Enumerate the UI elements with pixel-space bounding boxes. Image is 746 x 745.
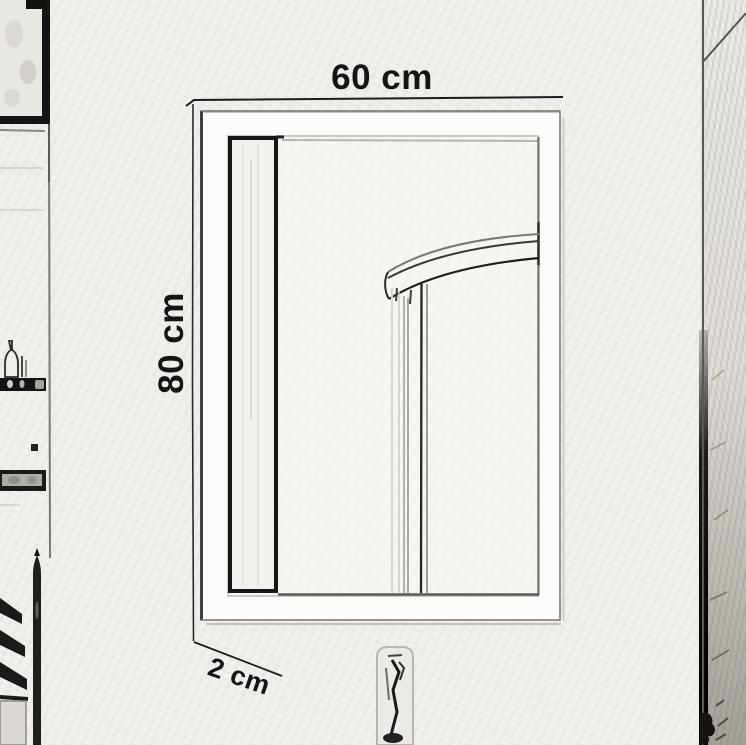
rail-hinge-mark bbox=[410, 290, 411, 304]
height-dimension-label: 80 cm bbox=[154, 287, 190, 399]
height-dimension-line bbox=[193, 104, 194, 641]
rail-hinge-mark bbox=[396, 288, 397, 301]
plant-stem-tip bbox=[34, 548, 40, 556]
reflection-door-strip bbox=[230, 138, 276, 591]
reflection-vertical-dark bbox=[421, 283, 422, 593]
ceiling-diagonal-line bbox=[702, 13, 746, 63]
faucet-sketch bbox=[377, 647, 413, 745]
wall-scribble bbox=[710, 592, 727, 600]
shower-rail-cap bbox=[385, 272, 389, 299]
left-wall-sketch bbox=[0, 0, 50, 745]
width-dimension-label: 60 cm bbox=[326, 60, 438, 95]
sketch-canvas: 60 cm 80 cm 2 cm bbox=[0, 0, 746, 745]
cabinet-texture-blob bbox=[5, 20, 23, 48]
shelf-item bbox=[35, 380, 44, 389]
rack-edge bbox=[0, 697, 28, 699]
shelf-item bbox=[20, 380, 25, 388]
cabinet-texture-blob bbox=[20, 60, 36, 84]
rack-slat bbox=[0, 598, 22, 624]
rack-panel bbox=[0, 701, 26, 745]
plant-stem-sketch bbox=[33, 555, 41, 745]
wall-dark-blob bbox=[700, 713, 715, 745]
small-square-mark bbox=[31, 444, 38, 451]
wall-line bbox=[0, 130, 45, 131]
wall-scribble bbox=[712, 370, 724, 380]
shelf-item bbox=[7, 380, 13, 388]
width-dimension-line bbox=[186, 97, 563, 106]
rack-slat bbox=[0, 630, 25, 657]
plant-stem-highlight bbox=[35, 601, 38, 619]
right-wall-sketch bbox=[700, 0, 746, 745]
faucet-mark bbox=[388, 655, 402, 656]
shower-rail-curve bbox=[388, 234, 539, 272]
reflection-top-line bbox=[282, 140, 538, 141]
rack-slat bbox=[0, 662, 27, 690]
cabinet-texture-blob bbox=[4, 89, 20, 107]
wall-scribble bbox=[714, 510, 728, 520]
bottle-sketch bbox=[5, 341, 18, 377]
wall-dark-scribble bbox=[716, 700, 728, 740]
shelf-face-texture bbox=[8, 476, 20, 484]
faucet-base bbox=[383, 733, 403, 743]
mirror-reflection-sketch bbox=[230, 137, 539, 596]
wall-corner-line bbox=[49, 124, 50, 558]
wall-scribble bbox=[710, 442, 726, 450]
shelf-face-texture bbox=[27, 476, 37, 484]
cabinet-corner-mark bbox=[26, 0, 46, 9]
sketch-linework bbox=[0, 0, 746, 745]
wall-scribble bbox=[712, 650, 729, 660]
